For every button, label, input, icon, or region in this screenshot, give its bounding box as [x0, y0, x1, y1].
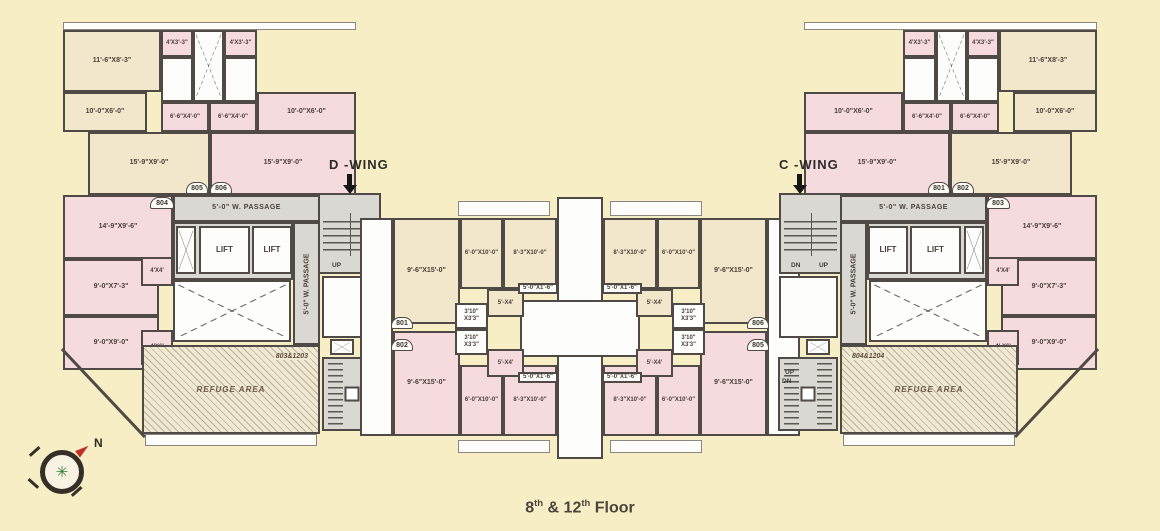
room: 10'-0"X6'-0": [1013, 92, 1097, 132]
door-arc-802: 802: [952, 182, 974, 194]
duct-shaft: [193, 30, 224, 102]
door-arc-801: 801: [928, 182, 950, 194]
room: 4'X3'-3": [161, 30, 193, 57]
stair-landing: [345, 387, 360, 402]
door-arc-806: 806: [210, 182, 232, 194]
door-arc-801: 801: [391, 317, 413, 329]
room: 4'X3'-3": [967, 30, 999, 57]
lightwell: [967, 57, 999, 102]
niche: 5'-0"X1'-6": [602, 372, 642, 383]
stair-landing: [801, 387, 816, 402]
refuge-area-right: 804&1204 REFUGE AREA: [840, 345, 1018, 434]
room: 9'-6"X15'-0": [700, 218, 767, 324]
room: 6'-6"X4'-0": [209, 102, 257, 132]
niche: 5'-0"X1'-6": [518, 283, 558, 294]
room: 6'-6"X4'-0": [951, 102, 999, 132]
duct-shaft: [936, 30, 967, 102]
compass-spike-icon: [28, 478, 39, 489]
shaft-x-icon: [966, 228, 982, 272]
duct-x-icon: [195, 32, 222, 100]
door-arc-804: 804: [150, 197, 174, 209]
lift: LIFT: [252, 226, 292, 274]
duct-x-icon: [871, 282, 985, 340]
door-arc-805: 805: [186, 182, 208, 194]
door-arc-805: 805: [747, 339, 769, 351]
entry-arrow-icon: [797, 174, 802, 185]
entry-arrow-icon: [347, 174, 352, 185]
lift: LIFT: [868, 226, 908, 274]
duct-x-icon: [175, 282, 289, 340]
refuge-area-left: 803&1203 REFUGE AREA: [142, 345, 320, 434]
service-shaft: [330, 339, 354, 355]
toilet: 3'10"X3'3": [672, 303, 705, 329]
room: 11'-6"X8'-3": [63, 30, 161, 92]
room: 11'-6"X8'-3": [999, 30, 1097, 92]
floor-caption: 8th & 12th Floor: [0, 498, 1160, 517]
lightwell: [903, 57, 936, 102]
parapet-strip: [804, 22, 1097, 30]
lightwell: [224, 57, 257, 102]
service-shaft: [964, 226, 984, 274]
room: 6'-6"X4'-0": [161, 102, 209, 132]
stair-treads: [328, 363, 343, 425]
niche: 5'-0"X1'-6": [602, 283, 642, 294]
passage-horizontal: 5'-0" W. PASSAGE: [840, 195, 987, 222]
passage-horizontal: 5'-0" W. PASSAGE: [173, 195, 320, 222]
compass-star-icon: ✳: [56, 465, 69, 480]
room: 4'X4': [141, 257, 173, 286]
room: 10'-0"X6'-0": [257, 92, 356, 132]
room: 4'X3'-3": [224, 30, 257, 57]
balcony-strip: [145, 434, 317, 446]
room: 4'X4': [987, 257, 1019, 286]
room: 10'-0"X6'-0": [804, 92, 903, 132]
balcony-strip: [843, 434, 1015, 446]
balcony-strip: [458, 201, 550, 216]
duct-shaft: [173, 280, 291, 342]
north-arrow-icon: [75, 443, 91, 458]
passage-vertical: 5'-0" W. PASSAGE: [293, 222, 320, 345]
toilet: 3'10"X3'3": [672, 329, 705, 355]
lift: LIFT: [199, 226, 250, 274]
central-void: [520, 300, 640, 357]
balcony-strip: [458, 440, 550, 453]
north-label: N: [94, 436, 103, 450]
door-arc-806: 806: [747, 317, 769, 329]
stair-treads: [817, 363, 832, 425]
compass: ✳ N: [26, 434, 102, 506]
duct-shaft: [869, 280, 987, 342]
room: 9'-6"X15'-0": [393, 218, 460, 324]
staircase-upper-right: DN UP: [779, 193, 842, 274]
service-shaft: [806, 339, 830, 355]
floorplan-page: { "caption": {"p1": "8", "sup1": "th", "…: [0, 0, 1160, 531]
shaft-x-icon: [332, 341, 352, 353]
duct-x-icon: [938, 32, 965, 100]
niche: 5'-0"X1'-6": [518, 372, 558, 383]
room: 6'-0"X10'-0": [460, 218, 503, 289]
passage-vertical: 5'-0" W. PASSAGE: [840, 222, 867, 345]
wing-label-right: C -WING: [779, 157, 839, 172]
balcony-strip: [610, 440, 702, 453]
door-arc-803: 803: [986, 197, 1010, 209]
service-shaft: [176, 226, 196, 274]
shaft-x-icon: [808, 341, 828, 353]
room: 10'-0"X6'-0": [63, 92, 147, 132]
wing-label-left: D -WING: [329, 157, 389, 172]
lightwell: [360, 218, 393, 436]
toilet: 3'10"X3'3": [455, 303, 488, 329]
door-arc-802: 802: [391, 339, 413, 351]
parapet-strip: [63, 22, 356, 30]
compass-ring-icon: ✳: [40, 450, 84, 494]
balcony-strip: [610, 201, 702, 216]
toilet: 3'10"X3'3": [455, 329, 488, 355]
stair-treads: [784, 221, 837, 256]
room: 4'X3'-3": [903, 30, 936, 57]
lightwell: [161, 57, 193, 102]
lift: LIFT: [910, 226, 961, 274]
utility-room: [779, 276, 838, 338]
room: 8'-3"X10'-0": [603, 218, 657, 289]
room: 6'-6"X4'-0": [903, 102, 951, 132]
shaft-x-icon: [178, 228, 194, 272]
compass-spike-icon: [29, 446, 40, 457]
room: 6'-0"X10'-0": [657, 218, 700, 289]
room: 8'-3"X10'-0": [503, 218, 557, 289]
staircase-lower-right: UP DN: [778, 357, 838, 431]
